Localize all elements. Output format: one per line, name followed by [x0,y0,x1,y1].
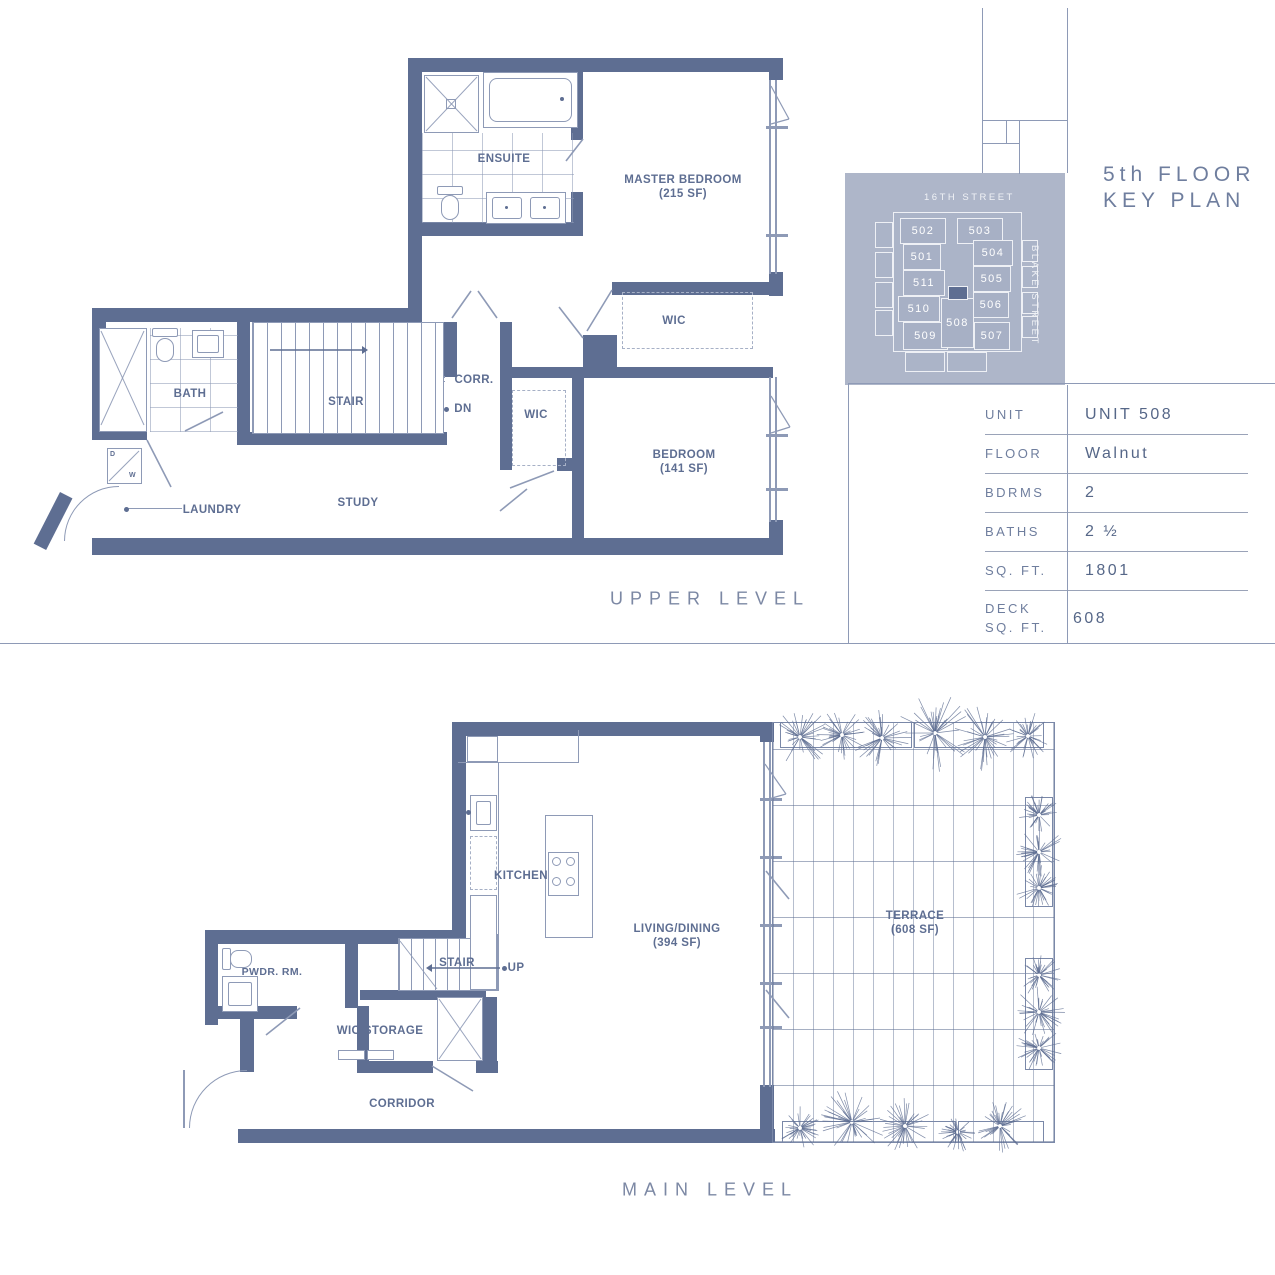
wall [769,58,783,80]
fixture [197,335,219,353]
wall [238,1129,775,1143]
room-area-living-dining: (394 SF) [653,937,701,949]
key-plan-unit: 507 [974,322,1010,350]
fixture [228,982,252,1006]
marker-dot [543,206,546,209]
key-plan-title-line2: KEY PLAN [1103,188,1255,214]
wall [408,58,783,72]
washer-letter: W [129,472,136,479]
key-plan-unit: 508 [941,298,974,348]
key-plan-unit: 511 [903,270,945,296]
row-label: BATHS [985,523,1073,541]
thin-line [982,143,1020,144]
planter-box [780,722,912,748]
thin-line [769,80,771,274]
street-label-top: 16TH STREET [924,192,1015,203]
burner-icon [566,857,575,866]
wall [92,538,783,555]
thin-line [578,730,579,763]
fixture [367,1050,394,1060]
room-label-wic-bedroom: WIC [524,409,548,421]
room-label-kitchen: KITCHEN [494,870,548,882]
room-label-laundry: LAUNDRY [183,504,242,516]
thin-line [982,120,1068,121]
marker-dot [124,507,129,512]
wall [483,997,497,1061]
marker-dot [466,810,471,815]
room-label-bedroom: BEDROOM [653,449,716,461]
room-label-terrace: TERRACE [886,910,944,922]
key-plan-unit: 505 [973,266,1011,292]
key-plan-cell [875,252,893,278]
wall [408,222,583,236]
room-area-master-bedroom: (215 SF) [659,188,707,200]
thin-line [0,643,1275,644]
thin-line [769,377,771,522]
stair-up-label: UP [508,962,525,974]
fixture [476,801,491,825]
marker-dot [502,966,507,971]
room-label-master-bedroom: MASTER BEDROOM [624,174,741,186]
key-plan-unit: 501 [903,244,941,270]
unit-info-table: UNITUNIT 508 FLOORWalnut BDRMS2 BATHS2 ½… [985,396,1248,646]
wall [583,335,617,367]
room-area-terrace: (608 SF) [891,924,939,936]
marker-dot [560,97,564,101]
fixture [152,328,178,337]
thin-line [766,234,788,237]
thin-line [982,8,983,173]
door-swing-arc [64,486,119,541]
key-plan-cell [947,352,987,372]
table-row: SQ. FT.1801 [985,552,1248,591]
fixture [441,195,459,220]
marker-dot [505,206,508,209]
room-label-corridor-main: CORRIDOR [369,1098,435,1110]
wall [572,377,584,545]
row-label: UNIT [985,406,1073,424]
table-row: DECK SQ. FT.608 [985,591,1248,646]
row-label: DECK SQ. FT. [985,600,1061,636]
fixture [338,1050,365,1060]
wall [357,1061,433,1073]
upper-level-title: UPPER LEVEL [610,589,810,610]
thin-line [848,383,849,644]
table-row: BDRMS2 [985,474,1248,513]
burner-icon [552,857,561,866]
thin-line [848,383,1275,384]
room-label-stair-upper: STAIR [328,396,364,408]
wall [408,58,422,322]
key-plan-unit: 502 [900,218,946,244]
street-label-right: BLAKE STREET [1029,245,1040,346]
burner-icon [552,877,561,886]
room-label-bath: BATH [174,388,207,400]
planter-box [914,722,1044,748]
wall [508,367,773,378]
thin-line [128,508,182,509]
room-label-powder-room: PWDR. RM. [242,966,303,978]
room-label-ensuite: ENSUITE [478,153,531,165]
thin-line [769,742,771,1087]
stair-down-label: DN [454,403,471,415]
fixture [467,736,498,762]
room-label-wic-storage: WIC/STORAGE [337,1025,424,1037]
fixture [470,895,497,990]
room-label-wic-master: WIC [662,315,686,327]
key-plan-unit: 504 [973,240,1013,266]
table-row: UNITUNIT 508 [985,396,1248,435]
fixture [156,338,174,362]
dryer-letter: D [110,451,115,458]
fixture [99,328,147,432]
wall [443,322,457,377]
key-plan-title-line1: 5th FLOOR [1103,162,1255,188]
key-plan-unit-notch [948,286,968,300]
thin-line [1019,120,1020,174]
thin-line [763,742,765,1087]
thin-line [1006,120,1007,144]
row-value: UNIT 508 [1073,406,1173,424]
thin-line [766,126,788,129]
thin-line [775,80,777,274]
key-plan-cell [875,282,893,308]
planter-box [1025,958,1053,1070]
wall [240,1012,254,1072]
room-label-living-dining: LIVING/DINING [634,923,721,935]
row-label: BDRMS [985,484,1073,502]
thin-line [1067,385,1068,643]
key-plan-cell [875,310,893,336]
wall [452,722,772,736]
fixture [446,99,456,109]
row-value: Walnut [1073,445,1149,463]
key-plan-unit: 506 [973,292,1009,318]
fixture [437,186,463,195]
planter-box [958,1121,1044,1143]
thin-line [1067,8,1068,173]
planter-box [782,1121,956,1143]
burner-icon [566,877,575,886]
room-label-corridor-upper: CORR. [454,374,493,386]
wall [345,930,358,1008]
wall [92,308,422,322]
wall [476,1061,498,1073]
key-plan-unit: 510 [898,296,940,322]
row-value: 1801 [1073,562,1131,580]
room-area-bedroom: (141 SF) [660,463,708,475]
thin-line [458,762,579,763]
table-row: BATHS2 ½ [985,513,1248,552]
thin-line [183,1070,185,1128]
fixture [437,997,483,1061]
key-plan-cell [905,352,945,372]
thin-line [766,434,788,437]
floor-plan-sheet: ENSUITE MASTER BEDROOM (215 SF) WIC CORR… [0,0,1275,1275]
thin-line [766,488,788,491]
row-label: FLOOR [985,445,1073,463]
planter-box [1025,797,1053,907]
door-swing-arc [189,1070,247,1128]
main-level-title: MAIN LEVEL [622,1180,798,1201]
row-value: 2 [1073,484,1096,502]
room-label-study: STUDY [338,497,379,509]
room-label-stair-main: STAIR [439,957,475,969]
key-plan-title: 5th FLOOR KEY PLAN [1103,162,1255,214]
key-plan-cell [875,222,893,248]
thin-line [775,377,777,522]
closet-rod [622,292,753,349]
stair-treads [252,322,444,434]
wall [452,722,466,944]
closet-rod [470,836,497,890]
row-label: SQ. FT. [985,562,1073,580]
marker-dot [444,407,449,412]
closet-rod [512,390,566,466]
table-row: FLOORWalnut [985,435,1248,474]
wall [500,322,512,470]
wall [237,322,250,445]
row-value: 2 ½ [1073,523,1119,541]
